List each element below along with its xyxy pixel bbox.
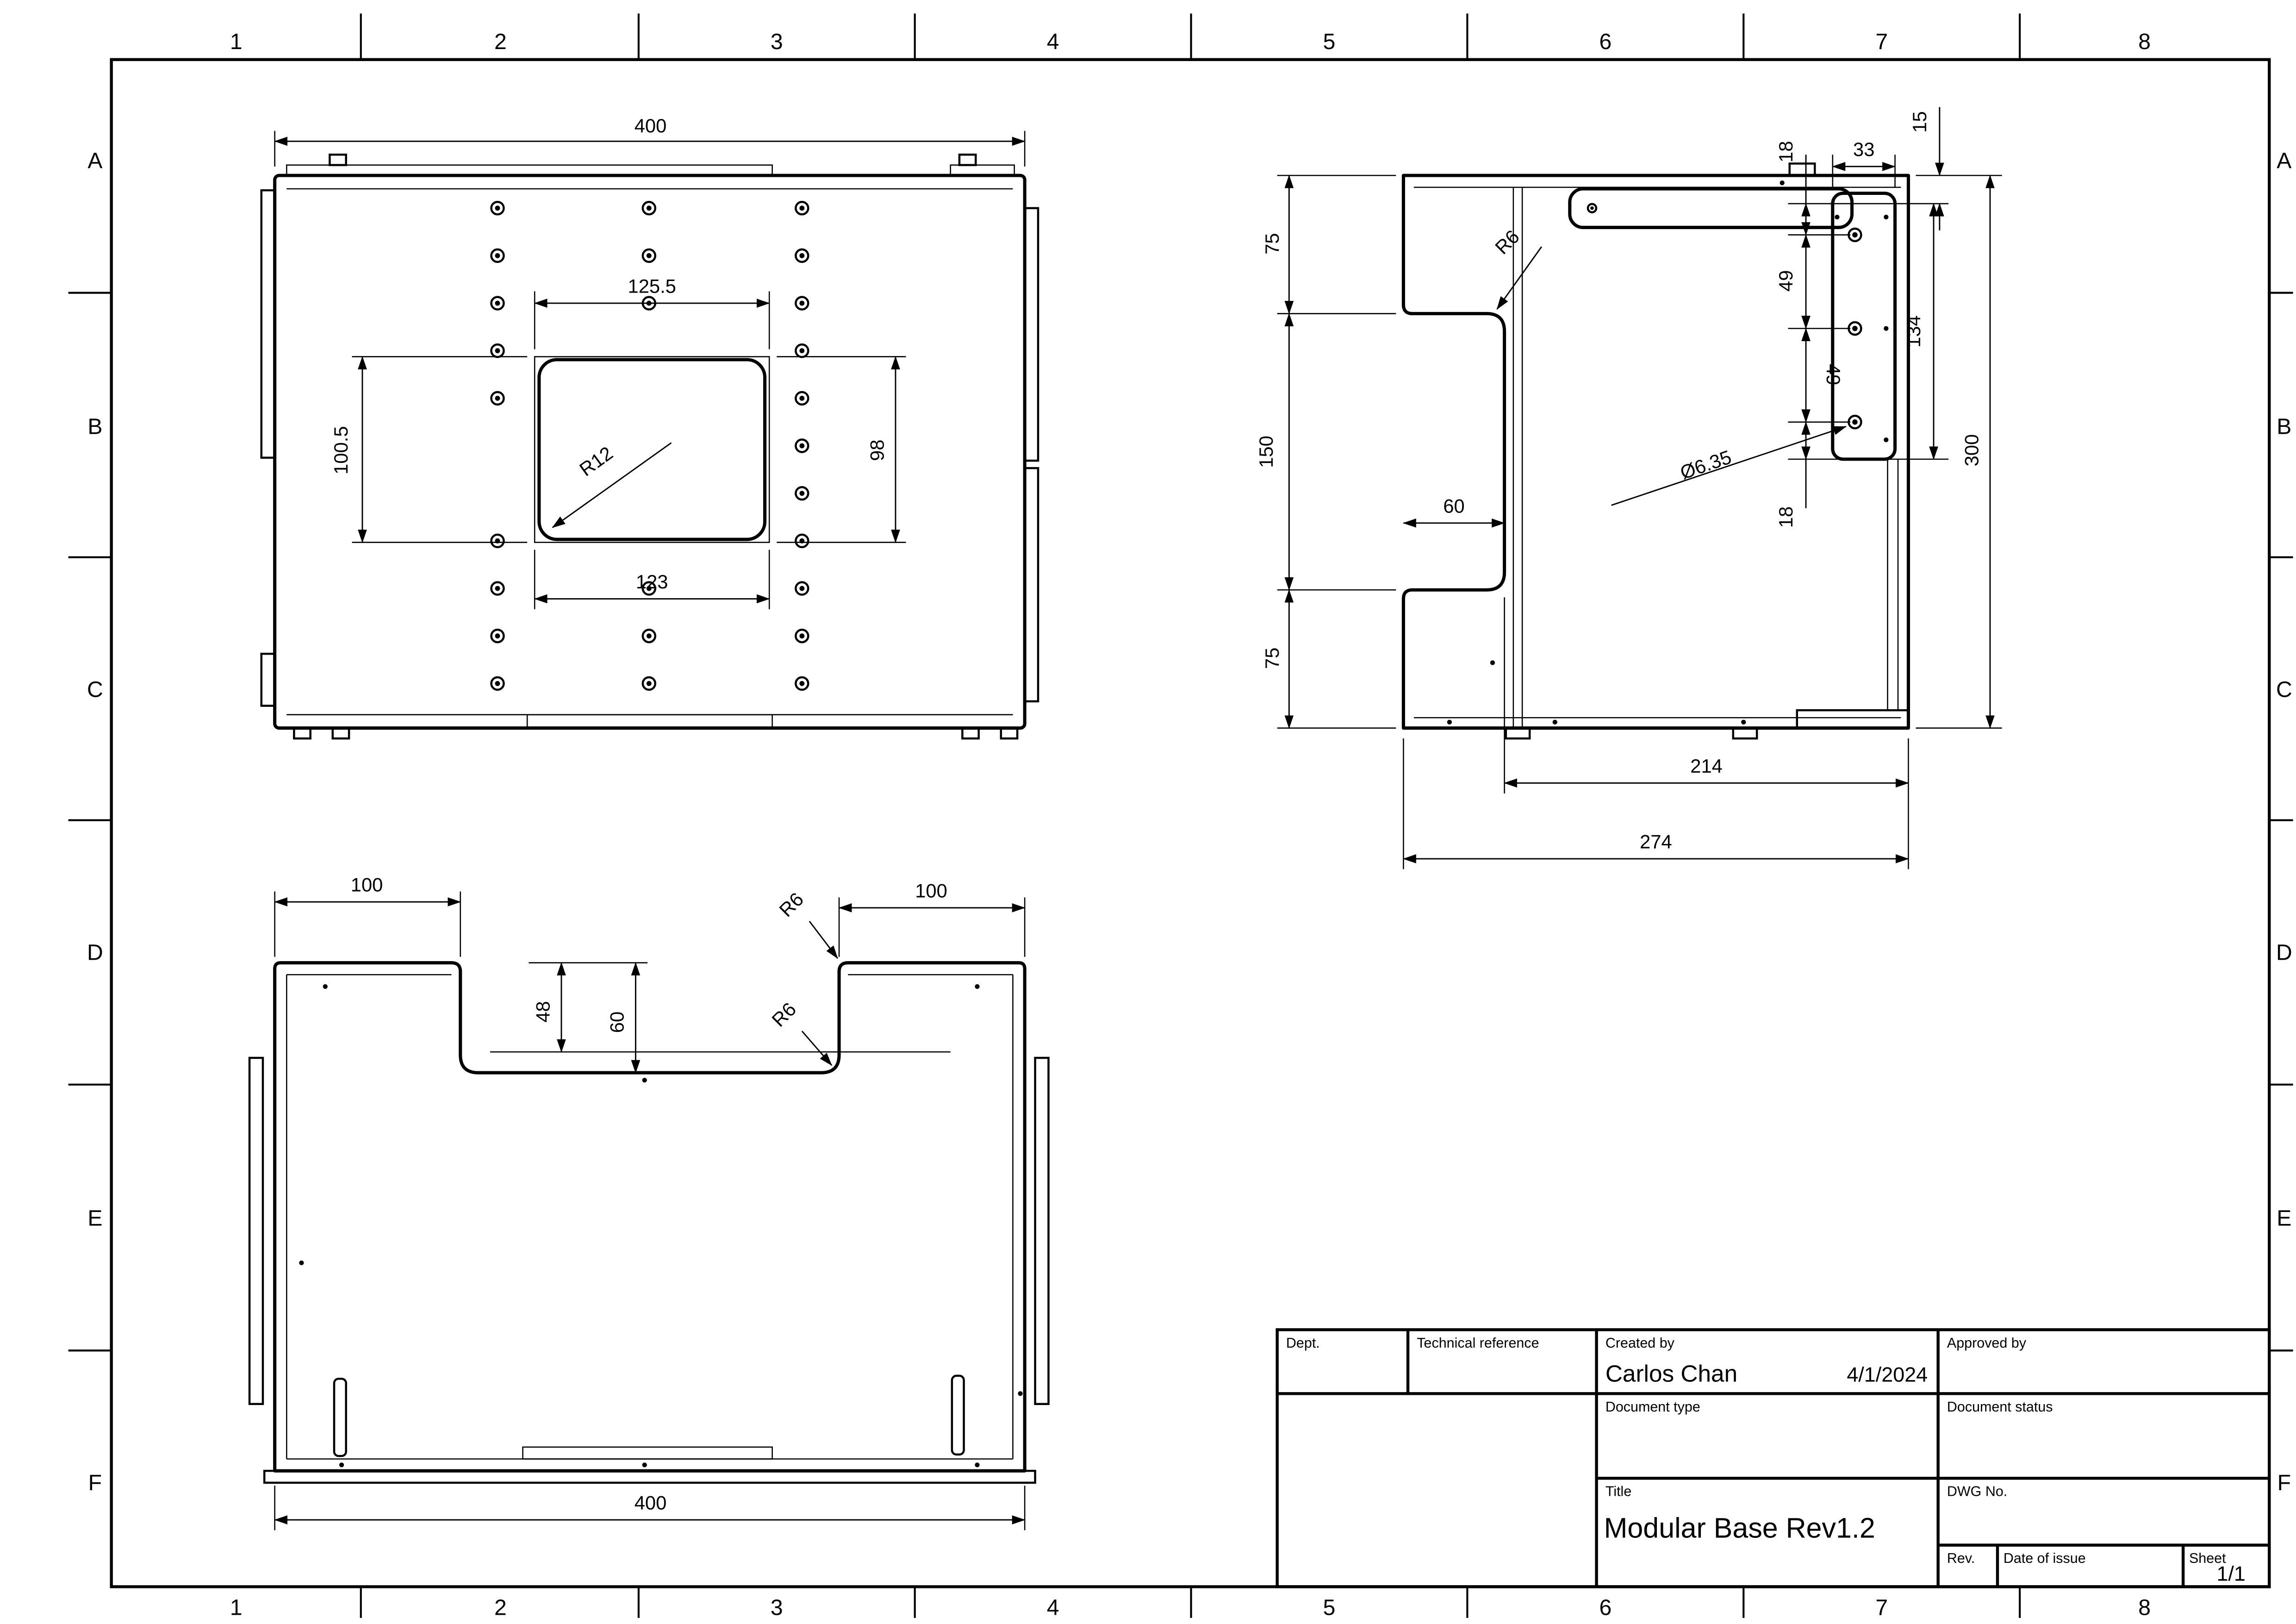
tab	[330, 155, 346, 165]
dwg-no-label: DWG No.	[1947, 1484, 2007, 1499]
dim-overall-width: 400	[635, 1492, 667, 1514]
date-of-issue-label: Date of issue	[2004, 1550, 2086, 1566]
dim-step-inner: 48	[532, 1001, 554, 1022]
grid-col-label: 1	[230, 1595, 243, 1620]
title-label: Title	[1605, 1484, 1631, 1499]
dim-seg-bottom: 75	[1261, 648, 1283, 669]
dim-flange-width: 33	[1853, 138, 1874, 160]
title-value: Modular Base Rev1.2	[1604, 1512, 1875, 1544]
grid-row-label: E	[2277, 1206, 2291, 1231]
slot	[334, 1379, 346, 1456]
dim-height: 300	[1960, 434, 1982, 467]
grid-col-label: 1	[230, 29, 243, 54]
grid-col-label: 7	[1875, 29, 1888, 54]
rev-label: Rev.	[1947, 1550, 1975, 1566]
dim-notch-depth: 60	[1443, 495, 1464, 517]
grid-col-label: 7	[1875, 1595, 1888, 1620]
sheet-value: 1/1	[2216, 1562, 2245, 1586]
grid-row-label: D	[2276, 940, 2292, 965]
grid-row-label: C	[87, 677, 103, 702]
grid-row-label: B	[2277, 414, 2291, 439]
slot	[952, 1376, 964, 1455]
dim-hole-dia: Ø6.35	[1677, 446, 1734, 483]
grid-col-label: 2	[494, 29, 507, 54]
grid-col-label: 3	[771, 1595, 783, 1620]
created-by-label: Created by	[1605, 1335, 1675, 1351]
dim-plate-offset: 15	[1909, 111, 1930, 132]
tab	[959, 155, 976, 165]
document-status-label: Document status	[1947, 1399, 2053, 1415]
drawing-canvas: 1 2 3 4 5 6 7 8 1 2 3 4 5 6 7 8 A B C D …	[0, 0, 2296, 1624]
grid-row-label: C	[2276, 677, 2292, 702]
grid-row-label: F	[88, 1470, 102, 1495]
dim-cutout-bottom: 123	[636, 571, 668, 593]
dim-pitch2: 49	[1823, 364, 1844, 385]
approved-by-label: Approved by	[1947, 1335, 2027, 1351]
dim-cutout-radius: R12	[575, 442, 617, 481]
technical-reference-label: Technical reference	[1417, 1335, 1539, 1351]
grid-col-label: 6	[1599, 1595, 1612, 1620]
front-view: 100 100 48 60 R6 R6 400	[249, 874, 1048, 1530]
grid-row-label: A	[87, 148, 102, 173]
grid-col-label: 4	[1047, 29, 1059, 54]
dim-fillet-top: R6	[775, 888, 808, 921]
front-view-dimensions: 100 100 48 60 R6 R6 400	[275, 874, 1025, 1530]
dim-flange-span: 134	[1903, 315, 1924, 348]
side-flange	[1833, 193, 1895, 459]
dim-right-flat: 100	[915, 880, 947, 902]
title-block: Dept. Technical reference Created by Car…	[1277, 1330, 2270, 1587]
grid-labels: 1 2 3 4 5 6 7 8 1 2 3 4 5 6 7 8 A B C D …	[87, 29, 2292, 1620]
dim-left-flat: 100	[351, 874, 383, 896]
frame-ticks	[68, 13, 2293, 1618]
grid-row-label: A	[2277, 148, 2291, 173]
sheet-frame: 1 2 3 4 5 6 7 8 1 2 3 4 5 6 7 8 A B C D …	[68, 13, 2293, 1620]
side-view-dimensions: 75 150 75 60 R6 33 15	[1255, 107, 2002, 869]
grid-col-label: 3	[771, 29, 783, 54]
document-type-label: Document type	[1605, 1399, 1700, 1415]
dim-inner-width: 214	[1690, 755, 1723, 777]
dim-pitch1: 49	[1775, 270, 1797, 292]
dim-seg-mid: 150	[1255, 436, 1277, 468]
dim-cutout-left: 100.5	[330, 426, 352, 474]
grid-col-label: 8	[2138, 1595, 2151, 1620]
top-view: 400 125.5 123 100.5 98 R12	[261, 115, 1038, 738]
dim-fillet: R6	[1491, 225, 1524, 258]
dim-fillet-bottom: R6	[767, 998, 800, 1031]
grid-row-label: B	[87, 414, 102, 439]
dim-offset-top: 18	[1775, 141, 1797, 162]
grid-col-label: 4	[1047, 1595, 1059, 1620]
dim-cutout-top: 125.5	[628, 275, 676, 297]
grid-row-label: F	[2277, 1470, 2291, 1495]
created-by-value: Carlos Chan	[1605, 1361, 1737, 1387]
dim-cutout-right: 98	[866, 439, 888, 461]
dim-step-outer: 60	[606, 1012, 628, 1033]
created-date-value: 4/1/2024	[1847, 1363, 1928, 1387]
grid-col-label: 8	[2138, 29, 2151, 54]
dept-label: Dept.	[1286, 1335, 1320, 1351]
tab	[1790, 163, 1815, 175]
grid-col-label: 6	[1599, 29, 1612, 54]
grid-col-label: 2	[494, 1595, 507, 1620]
dim-offset-bottom: 18	[1775, 506, 1797, 528]
grid-row-label: E	[87, 1206, 102, 1231]
drawing-sheet: 1 2 3 4 5 6 7 8 1 2 3 4 5 6 7 8 A B C D …	[0, 0, 2296, 1624]
grid-row-label: D	[87, 940, 103, 965]
dim-seg-top: 75	[1261, 233, 1283, 254]
dim-outer-width: 274	[1640, 831, 1672, 853]
grid-col-label: 5	[1323, 1595, 1336, 1620]
shelf-bar	[1570, 189, 1852, 227]
grid-col-label: 5	[1323, 29, 1336, 54]
side-view: 75 150 75 60 R6 33 15	[1255, 107, 2002, 869]
dim-overall-width: 400	[635, 115, 667, 137]
